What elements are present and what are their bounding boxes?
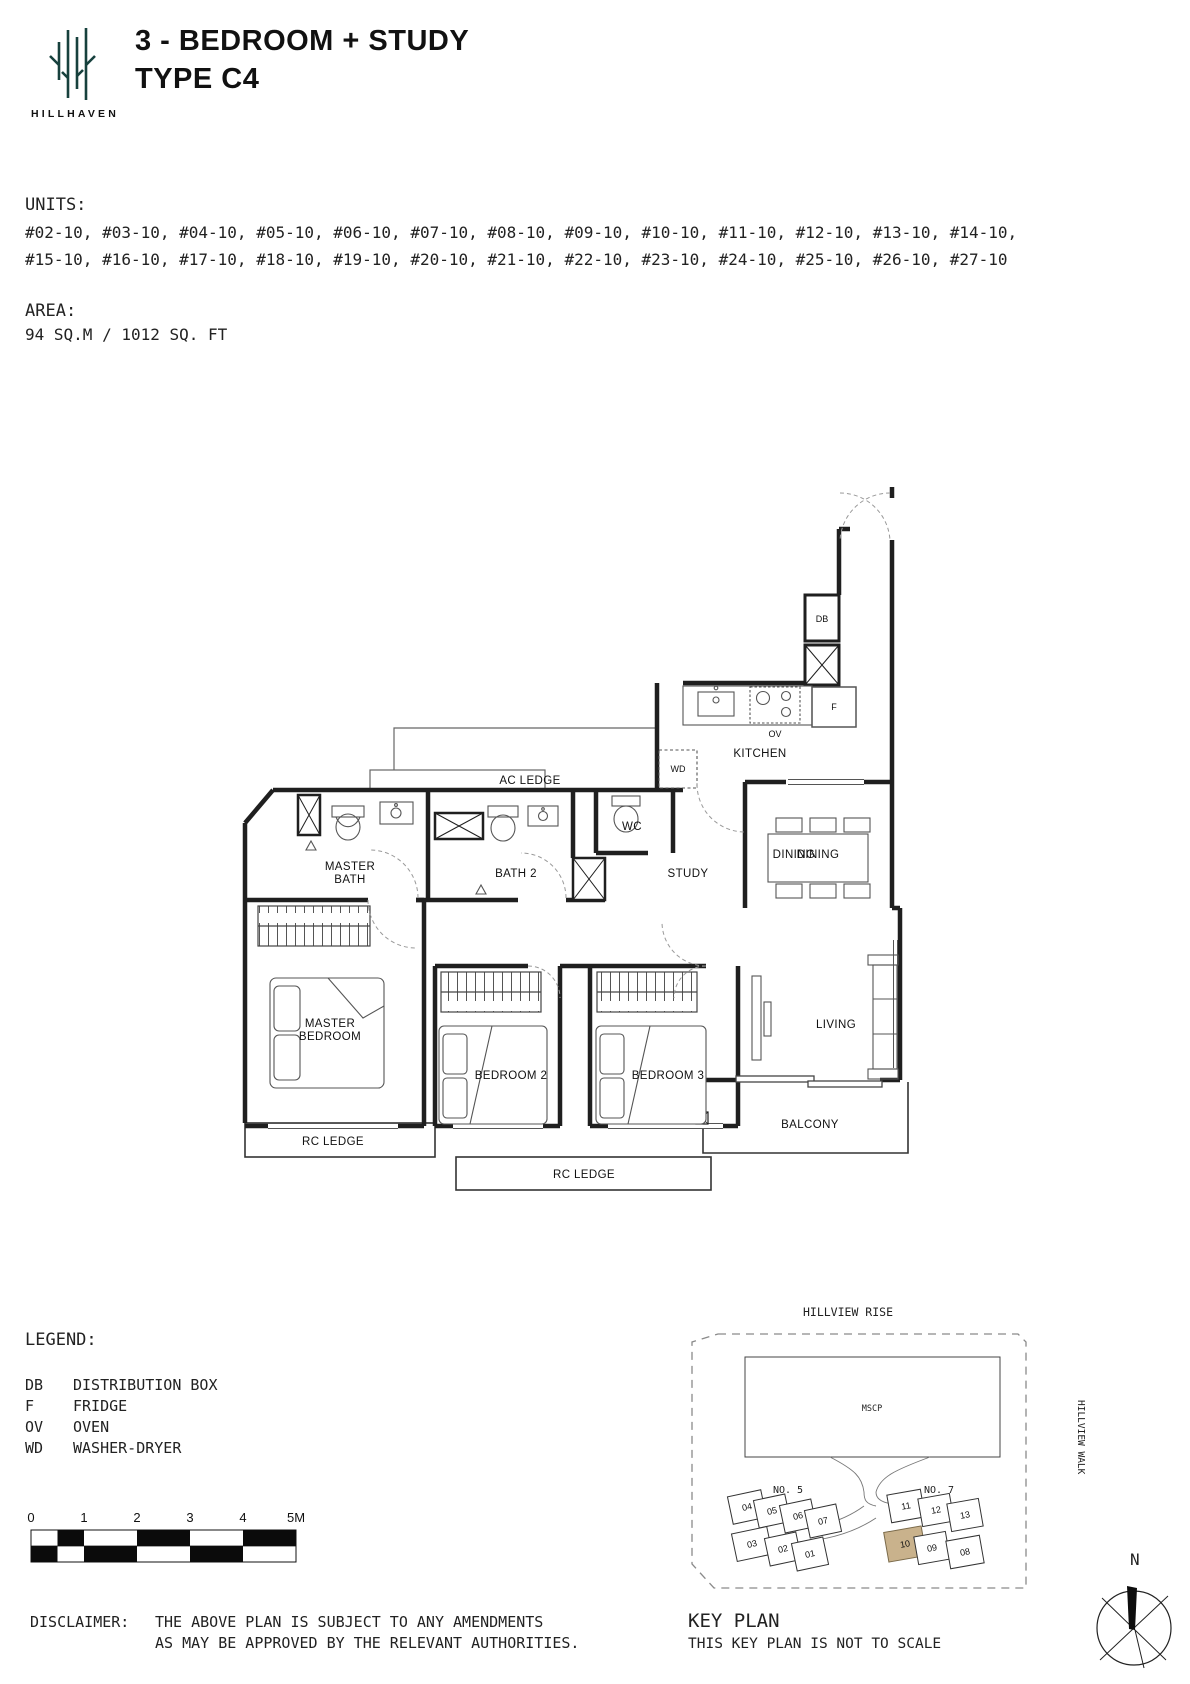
legend-row: DB DISTRIBUTION BOX — [25, 1376, 218, 1397]
unit-block: 09 — [914, 1531, 950, 1564]
area-info: AREA: 94 SQ.M / 1012 SQ. FT — [25, 300, 227, 346]
label-ac-ledge: AC LEDGE — [499, 775, 560, 787]
legend-abbr: OV — [25, 1418, 73, 1439]
disclaimer-label: DISCLAIMER: — [30, 1612, 155, 1654]
scale-tick: 4 — [239, 1510, 246, 1525]
mscp-label: MSCP — [862, 1404, 882, 1414]
area-label: AREA: — [25, 300, 227, 323]
legend-desc: WASHER-DRYER — [73, 1439, 218, 1460]
bamboo-icon — [50, 28, 95, 100]
units-list: UNITS: #02-10, #03-10, #04-10, #05-10, #… — [25, 192, 1017, 273]
unit-block: 13 — [947, 1498, 983, 1531]
road-label-hillview-rise: HILLVIEW RISE — [803, 1305, 893, 1319]
unit-number-highlighted: 10 — [899, 1538, 911, 1550]
disclaimer: DISCLAIMER: THE ABOVE PLAN IS SUBJECT TO… — [30, 1612, 579, 1654]
legend-table: DB DISTRIBUTION BOX F FRIDGE OV OVEN WD … — [25, 1376, 218, 1460]
building-blocks: 04 05 06 07 03 02 01 11 12 13 10 — [727, 1489, 984, 1571]
area-value: 94 SQ.M / 1012 SQ. FT — [25, 323, 227, 346]
page-title: 3 - BEDROOM + STUDY TYPE C4 — [135, 22, 469, 98]
legend-desc: OVEN — [73, 1418, 218, 1439]
unit-number: 13 — [959, 1509, 971, 1521]
cooktop — [750, 687, 800, 723]
road-label-hillview-walk: HILLVIEW WALK — [1075, 1400, 1086, 1475]
legend-abbr: DB — [25, 1376, 73, 1397]
compass-icon: N — [1086, 1548, 1186, 1683]
key-plan: HILLVIEW RISE HILLVIEW WALK MSCP NO. 5 N… — [640, 1292, 1090, 1610]
legend: LEGEND: DB DISTRIBUTION BOX F FRIDGE OV … — [25, 1330, 218, 1460]
scale-tick: 5M — [287, 1510, 305, 1525]
logo-wordmark: HILLHAVEN — [31, 108, 119, 120]
scale-tick: 2 — [133, 1510, 140, 1525]
unit-number: 04 — [741, 1501, 753, 1513]
keyplan-caption: KEY PLAN THIS KEY PLAN IS NOT TO SCALE — [688, 1610, 941, 1652]
scale-tick: 0 — [27, 1510, 34, 1525]
disclaimer-line-1: THE ABOVE PLAN IS SUBJECT TO ANY AMENDME… — [155, 1612, 579, 1633]
title-line-1: 3 - BEDROOM + STUDY — [135, 22, 469, 60]
unit-number: 07 — [817, 1515, 829, 1527]
legend-label: LEGEND: — [25, 1330, 218, 1350]
scale-ticks: 0 1 2 3 4 5M — [27, 1510, 305, 1525]
label-master-bath-1: MASTER — [325, 861, 375, 873]
unit-block: 01 — [791, 1537, 828, 1571]
floor-plan: AC LEDGE MASTER BATH BATH 2 WC STUDY KIT… — [228, 478, 918, 1193]
unit-number: 08 — [959, 1546, 971, 1558]
label-bedroom2: BEDROOM 2 — [475, 1070, 548, 1082]
disclaimer-line-2: AS MAY BE APPROVED BY THE RELEVANT AUTHO… — [155, 1633, 579, 1654]
label-oven: OV — [768, 729, 781, 739]
disclaimer-text: THE ABOVE PLAN IS SUBJECT TO ANY AMENDME… — [155, 1612, 579, 1654]
keyplan-title: KEY PLAN — [688, 1610, 941, 1632]
label-kitchen: KITCHEN — [733, 748, 786, 760]
legend-abbr: WD — [25, 1439, 73, 1460]
label-bedroom3: BEDROOM 3 — [632, 1070, 705, 1082]
label-balcony: BALCONY — [781, 1119, 839, 1131]
compass-north-label: N — [1130, 1550, 1140, 1569]
unit-block: 08 — [946, 1535, 984, 1568]
legend-desc: FRIDGE — [73, 1397, 218, 1418]
label-master-bath-2: BATH — [334, 874, 365, 886]
unit-number: 06 — [792, 1510, 804, 1522]
scale-blocks — [31, 1530, 296, 1562]
door-arcs — [368, 493, 890, 998]
label-master-bedroom-2: BEDROOM — [299, 1031, 361, 1043]
label-master-bedroom-1: MASTER — [305, 1018, 355, 1030]
legend-row: WD WASHER-DRYER — [25, 1439, 218, 1460]
label-db: DB — [816, 614, 829, 624]
legend-desc: DISTRIBUTION BOX — [73, 1376, 218, 1397]
balcony-outline — [703, 1082, 908, 1153]
label-wc: WC — [622, 821, 642, 833]
label-fridge: F — [831, 702, 837, 712]
label-living: LIVING — [816, 1019, 856, 1031]
legend-row: OV OVEN — [25, 1418, 218, 1439]
scale-bar: 0 1 2 3 4 5M — [22, 1508, 312, 1578]
label-washer-dryer: WD — [671, 764, 686, 774]
units-line-2: #15-10, #16-10, #17-10, #18-10, #19-10, … — [25, 246, 1017, 273]
block-label-no5: NO. 5 — [773, 1485, 803, 1496]
legend-row: F FRIDGE — [25, 1397, 218, 1418]
unit-number: 12 — [930, 1504, 942, 1516]
legend-abbr: F — [25, 1397, 73, 1418]
scale-tick: 1 — [80, 1510, 87, 1525]
living-furniture — [752, 955, 898, 1079]
label-study: STUDY — [668, 868, 709, 880]
keyplan-note: THIS KEY PLAN IS NOT TO SCALE — [688, 1636, 941, 1652]
label-dining-duplicate: DINING — [797, 849, 840, 861]
unit-number: 01 — [804, 1548, 816, 1560]
kitchen-sink — [698, 692, 734, 716]
title-line-2: TYPE C4 — [135, 60, 469, 98]
unit-number: 02 — [777, 1543, 789, 1555]
unit-number: 09 — [926, 1542, 938, 1554]
label-bath2: BATH 2 — [495, 868, 537, 880]
unit-block: 07 — [804, 1504, 841, 1538]
bath2-fixtures — [476, 806, 558, 894]
master-bath-fixtures — [306, 802, 413, 850]
unit-number: 11 — [901, 1500, 912, 1511]
label-rc-ledge-left: RC LEDGE — [302, 1136, 364, 1148]
hillhaven-logo: HILLHAVEN — [28, 18, 123, 123]
floorplan-page: HILLHAVEN 3 - BEDROOM + STUDY TYPE C4 UN… — [0, 0, 1190, 1684]
units-line-1: #02-10, #03-10, #04-10, #05-10, #06-10, … — [25, 219, 1017, 246]
label-rc-ledge-bottom: RC LEDGE — [553, 1169, 615, 1181]
units-label: UNITS: — [25, 192, 1017, 219]
unit-number: 05 — [766, 1505, 778, 1517]
unit-number: 03 — [746, 1538, 758, 1550]
scale-tick: 3 — [186, 1510, 193, 1525]
